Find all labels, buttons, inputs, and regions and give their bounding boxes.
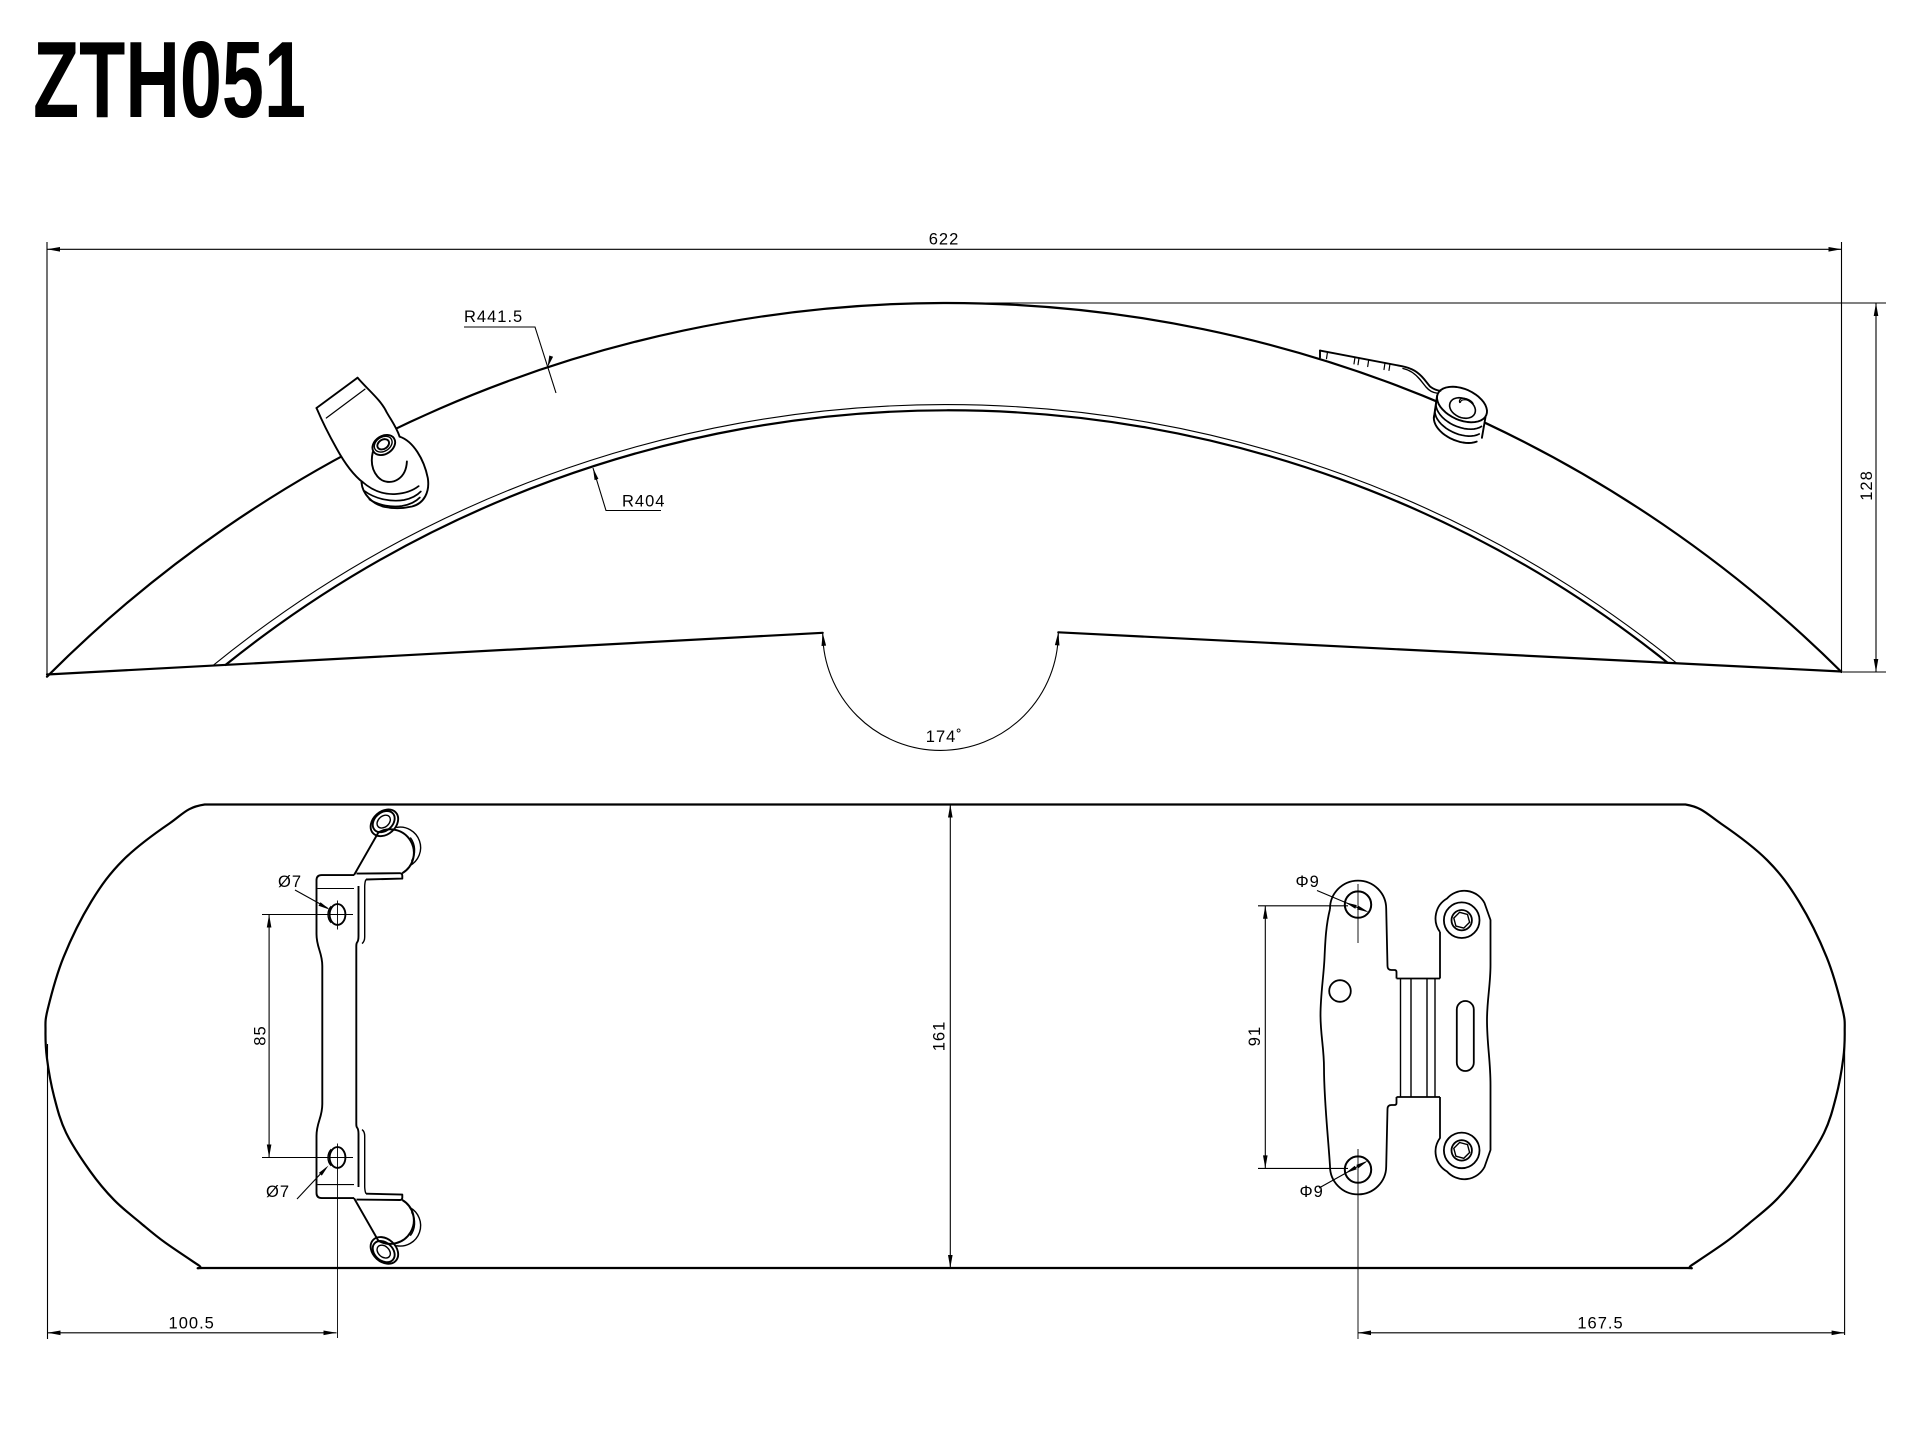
svg-text:ZTH051: ZTH051 bbox=[33, 19, 306, 141]
svg-text:161: 161 bbox=[931, 1021, 949, 1052]
svg-text:85: 85 bbox=[252, 1025, 270, 1045]
svg-text:167.5: 167.5 bbox=[1577, 1314, 1623, 1332]
svg-text:91: 91 bbox=[1246, 1026, 1264, 1046]
svg-text:Ø7: Ø7 bbox=[278, 873, 302, 891]
svg-text:622: 622 bbox=[929, 231, 960, 249]
svg-text:Φ9: Φ9 bbox=[1300, 1183, 1324, 1201]
svg-text:Φ9: Φ9 bbox=[1296, 873, 1320, 891]
svg-text:128: 128 bbox=[1858, 470, 1876, 501]
svg-text:R441.5: R441.5 bbox=[464, 308, 523, 326]
svg-text:174˚: 174˚ bbox=[926, 728, 963, 746]
svg-text:Ø7: Ø7 bbox=[266, 1183, 290, 1201]
svg-text:100.5: 100.5 bbox=[169, 1314, 215, 1332]
svg-text:R404: R404 bbox=[622, 493, 665, 511]
